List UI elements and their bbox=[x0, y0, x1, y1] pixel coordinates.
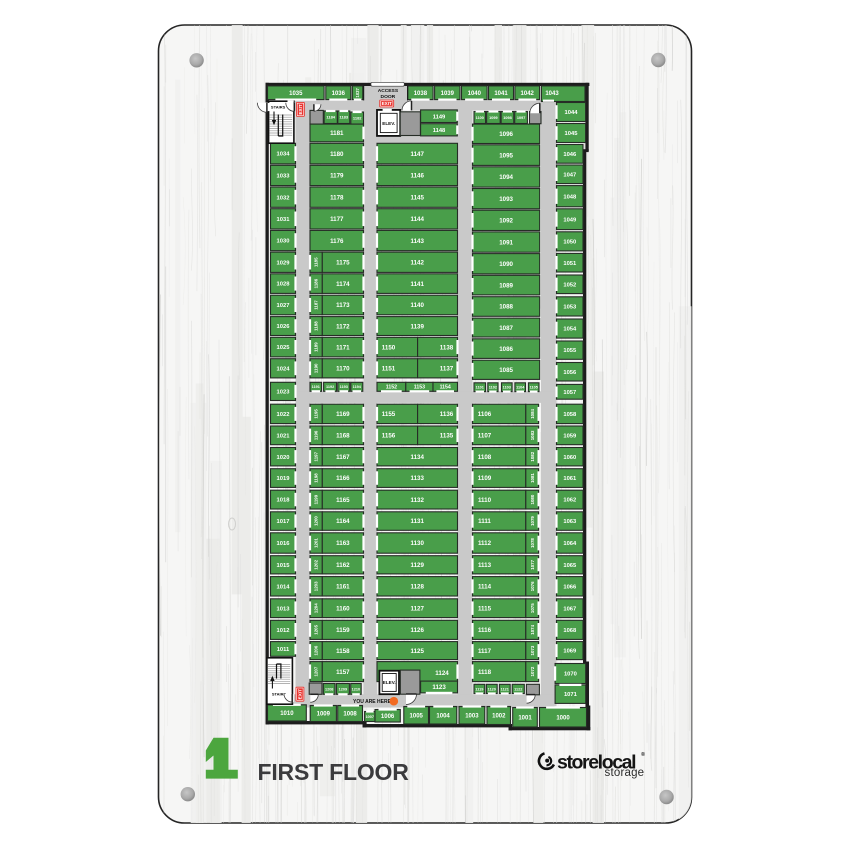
svg-text:1026: 1026 bbox=[277, 324, 291, 330]
svg-text:1008: 1008 bbox=[343, 712, 357, 718]
svg-text:1178: 1178 bbox=[330, 194, 344, 201]
svg-text:1193: 1193 bbox=[340, 385, 348, 389]
svg-text:1061: 1061 bbox=[563, 476, 577, 482]
svg-text:1023: 1023 bbox=[277, 389, 291, 395]
svg-text:1074: 1074 bbox=[530, 624, 535, 634]
svg-text:1068: 1068 bbox=[563, 628, 577, 634]
svg-text:1034: 1034 bbox=[277, 152, 291, 158]
svg-text:1042: 1042 bbox=[521, 91, 535, 97]
svg-text:1128: 1128 bbox=[410, 584, 424, 591]
svg-text:1159: 1159 bbox=[336, 627, 350, 634]
svg-text:1138: 1138 bbox=[440, 344, 454, 351]
svg-text:1077: 1077 bbox=[530, 559, 535, 569]
svg-text:1151: 1151 bbox=[382, 366, 396, 373]
svg-text:1126: 1126 bbox=[410, 627, 424, 634]
svg-text:1093: 1093 bbox=[499, 196, 513, 203]
svg-text:1043: 1043 bbox=[545, 91, 559, 97]
svg-text:1197: 1197 bbox=[314, 451, 319, 461]
svg-text:1188: 1188 bbox=[314, 321, 319, 331]
svg-text:1111: 1111 bbox=[478, 518, 491, 525]
svg-text:1174: 1174 bbox=[336, 281, 350, 288]
svg-text:EXIT: EXIT bbox=[298, 104, 303, 114]
svg-text:1033: 1033 bbox=[277, 173, 291, 179]
svg-text:1006: 1006 bbox=[381, 714, 395, 720]
svg-text:1114: 1114 bbox=[478, 584, 492, 591]
svg-text:1009: 1009 bbox=[317, 712, 331, 718]
svg-text:1125: 1125 bbox=[410, 648, 424, 655]
svg-text:1133: 1133 bbox=[410, 475, 424, 482]
svg-text:1152: 1152 bbox=[386, 385, 397, 391]
svg-text:1007: 1007 bbox=[366, 715, 374, 719]
svg-text:1121: 1121 bbox=[501, 687, 509, 691]
svg-text:1168: 1168 bbox=[336, 433, 350, 440]
svg-text:1163: 1163 bbox=[336, 540, 350, 547]
svg-text:1147: 1147 bbox=[410, 151, 424, 158]
svg-text:1021: 1021 bbox=[277, 433, 291, 439]
svg-text:1204: 1204 bbox=[314, 603, 319, 613]
svg-text:1072: 1072 bbox=[530, 666, 535, 676]
svg-text:1098: 1098 bbox=[503, 116, 511, 120]
svg-text:1120: 1120 bbox=[488, 687, 496, 691]
svg-text:1031: 1031 bbox=[277, 217, 291, 223]
svg-text:1198: 1198 bbox=[314, 473, 319, 483]
svg-text:1134: 1134 bbox=[410, 454, 424, 461]
svg-text:1164: 1164 bbox=[336, 518, 350, 525]
svg-text:1027: 1027 bbox=[277, 303, 290, 309]
svg-text:EXIT: EXIT bbox=[297, 689, 302, 699]
svg-text:1186: 1186 bbox=[314, 278, 319, 288]
svg-text:1149: 1149 bbox=[433, 114, 446, 120]
svg-text:1049: 1049 bbox=[563, 217, 577, 223]
svg-text:1040: 1040 bbox=[468, 91, 482, 97]
svg-text:1123: 1123 bbox=[432, 684, 446, 691]
svg-text:1192: 1192 bbox=[326, 385, 334, 389]
svg-text:1155: 1155 bbox=[382, 411, 396, 418]
svg-text:1018: 1018 bbox=[277, 498, 291, 504]
svg-text:1136: 1136 bbox=[440, 411, 454, 418]
svg-text:1131: 1131 bbox=[410, 518, 424, 525]
svg-text:1161: 1161 bbox=[336, 584, 350, 591]
svg-text:1139: 1139 bbox=[410, 323, 424, 330]
svg-text:1060: 1060 bbox=[563, 455, 576, 461]
svg-text:1059: 1059 bbox=[563, 433, 577, 439]
svg-text:®: ® bbox=[641, 751, 645, 758]
svg-text:1095: 1095 bbox=[499, 152, 513, 159]
svg-text:1010: 1010 bbox=[280, 711, 294, 717]
svg-text:1203: 1203 bbox=[314, 581, 319, 591]
svg-text:1196: 1196 bbox=[314, 430, 319, 440]
svg-text:1153: 1153 bbox=[414, 385, 425, 391]
svg-text:1108: 1108 bbox=[478, 454, 492, 461]
svg-text:1110: 1110 bbox=[478, 497, 492, 504]
svg-text:1210: 1210 bbox=[352, 687, 360, 691]
svg-text:1195: 1195 bbox=[314, 409, 319, 419]
svg-text:1100: 1100 bbox=[476, 116, 484, 120]
svg-text:1118: 1118 bbox=[478, 669, 492, 676]
svg-text:1146: 1146 bbox=[410, 173, 424, 180]
svg-text:1171: 1171 bbox=[336, 344, 350, 351]
svg-text:1156: 1156 bbox=[382, 433, 396, 440]
svg-text:1039: 1039 bbox=[441, 91, 455, 97]
svg-text:ELEV.: ELEV. bbox=[383, 680, 396, 685]
svg-text:1096: 1096 bbox=[499, 131, 513, 138]
svg-text:1015: 1015 bbox=[277, 563, 291, 569]
svg-text:1162: 1162 bbox=[336, 562, 350, 569]
svg-text:1067: 1067 bbox=[563, 606, 576, 612]
svg-text:1079: 1079 bbox=[530, 516, 535, 526]
svg-text:1180: 1180 bbox=[330, 151, 344, 158]
svg-text:1207: 1207 bbox=[314, 666, 319, 676]
svg-text:1000: 1000 bbox=[556, 715, 570, 721]
svg-text:1055: 1055 bbox=[563, 348, 577, 354]
svg-text:1106: 1106 bbox=[478, 411, 492, 418]
svg-text:1185: 1185 bbox=[314, 257, 319, 267]
svg-text:1053: 1053 bbox=[563, 304, 577, 310]
svg-text:1201: 1201 bbox=[314, 538, 319, 548]
svg-text:1075: 1075 bbox=[530, 603, 535, 613]
svg-text:1050: 1050 bbox=[563, 239, 576, 245]
svg-text:1091: 1091 bbox=[499, 239, 513, 246]
svg-text:1107: 1107 bbox=[478, 433, 492, 440]
svg-text:1057: 1057 bbox=[563, 390, 576, 396]
svg-text:1104: 1104 bbox=[516, 386, 525, 390]
svg-text:1141: 1141 bbox=[410, 281, 424, 288]
svg-text:YOU ARE HERE: YOU ARE HERE bbox=[353, 699, 392, 705]
svg-text:1087: 1087 bbox=[499, 325, 513, 332]
svg-text:1045: 1045 bbox=[565, 131, 579, 137]
svg-text:1073: 1073 bbox=[530, 645, 535, 655]
svg-text:1113: 1113 bbox=[478, 562, 492, 569]
svg-text:1103: 1103 bbox=[503, 386, 511, 390]
svg-text:1167: 1167 bbox=[336, 454, 350, 461]
svg-text:1194: 1194 bbox=[353, 385, 362, 389]
svg-text:1064: 1064 bbox=[563, 541, 577, 547]
svg-text:1069: 1069 bbox=[563, 649, 577, 655]
svg-text:1090: 1090 bbox=[499, 261, 513, 268]
svg-text:1097: 1097 bbox=[517, 116, 525, 120]
svg-text:1030: 1030 bbox=[277, 239, 290, 245]
svg-text:1024: 1024 bbox=[277, 366, 291, 372]
svg-text:1137: 1137 bbox=[440, 366, 454, 373]
svg-text:1092: 1092 bbox=[499, 218, 513, 225]
svg-text:1082: 1082 bbox=[530, 451, 535, 461]
svg-text:1190: 1190 bbox=[314, 363, 319, 373]
svg-text:1001: 1001 bbox=[518, 715, 532, 721]
svg-text:1175: 1175 bbox=[336, 259, 350, 266]
svg-text:1184: 1184 bbox=[326, 115, 335, 120]
svg-text:1189: 1189 bbox=[314, 342, 319, 352]
svg-text:1028: 1028 bbox=[277, 282, 291, 288]
svg-text:1022: 1022 bbox=[277, 412, 290, 418]
svg-text:1124: 1124 bbox=[435, 670, 449, 677]
svg-text:1058: 1058 bbox=[563, 412, 577, 418]
svg-text:1012: 1012 bbox=[277, 628, 290, 634]
svg-text:ELEV.: ELEV. bbox=[382, 121, 395, 126]
svg-text:1187: 1187 bbox=[314, 300, 319, 310]
svg-text:1209: 1209 bbox=[339, 687, 347, 691]
svg-text:1038: 1038 bbox=[414, 91, 428, 97]
svg-text:1020: 1020 bbox=[277, 455, 290, 461]
svg-text:1117: 1117 bbox=[478, 648, 492, 655]
svg-text:1056: 1056 bbox=[563, 370, 577, 376]
svg-text:1076: 1076 bbox=[530, 581, 535, 591]
svg-text:1145: 1145 bbox=[410, 194, 424, 201]
svg-text:1176: 1176 bbox=[330, 238, 344, 245]
svg-text:1063: 1063 bbox=[563, 519, 577, 525]
svg-text:1036: 1036 bbox=[332, 91, 346, 97]
svg-text:1078: 1078 bbox=[530, 538, 535, 548]
svg-text:1183: 1183 bbox=[339, 115, 348, 120]
svg-text:1014: 1014 bbox=[277, 584, 291, 590]
svg-text:1051: 1051 bbox=[563, 261, 577, 267]
svg-text:1094: 1094 bbox=[499, 174, 513, 181]
svg-text:1011: 1011 bbox=[277, 647, 290, 653]
svg-text:1200: 1200 bbox=[314, 516, 319, 526]
svg-text:1119: 1119 bbox=[475, 687, 483, 691]
svg-text:DOOR: DOOR bbox=[381, 94, 396, 100]
svg-text:1157: 1157 bbox=[336, 669, 350, 676]
svg-text:1062: 1062 bbox=[563, 498, 576, 504]
svg-text:1035: 1035 bbox=[289, 91, 303, 97]
svg-text:1048: 1048 bbox=[563, 194, 577, 200]
svg-text:1003: 1003 bbox=[465, 713, 479, 719]
svg-text:1005: 1005 bbox=[410, 713, 424, 719]
svg-text:1129: 1129 bbox=[410, 562, 424, 569]
svg-text:storage: storage bbox=[605, 767, 645, 779]
svg-text:1083: 1083 bbox=[530, 430, 535, 440]
svg-text:1179: 1179 bbox=[330, 173, 344, 180]
svg-text:1150: 1150 bbox=[382, 344, 396, 351]
svg-text:1116: 1116 bbox=[478, 627, 492, 634]
svg-text:1206: 1206 bbox=[314, 645, 319, 655]
svg-text:1132: 1132 bbox=[410, 497, 424, 504]
svg-text:1208: 1208 bbox=[325, 687, 333, 691]
svg-text:1019: 1019 bbox=[277, 476, 291, 482]
svg-text:1071: 1071 bbox=[564, 692, 578, 698]
svg-text:1102: 1102 bbox=[489, 386, 497, 390]
svg-text:1054: 1054 bbox=[563, 327, 577, 333]
svg-text:FIRST FLOOR: FIRST FLOOR bbox=[258, 759, 410, 785]
svg-text:1025: 1025 bbox=[277, 345, 291, 351]
svg-text:1181: 1181 bbox=[330, 130, 344, 137]
svg-text:EXIT: EXIT bbox=[382, 101, 392, 106]
svg-text:1166: 1166 bbox=[336, 475, 350, 482]
svg-text:1140: 1140 bbox=[410, 302, 424, 309]
svg-text:1081: 1081 bbox=[530, 473, 535, 483]
svg-text:1065: 1065 bbox=[563, 563, 577, 569]
svg-text:1170: 1170 bbox=[336, 366, 350, 373]
svg-text:ACCESS: ACCESS bbox=[378, 88, 399, 94]
svg-text:1016: 1016 bbox=[277, 541, 291, 547]
svg-text:1122: 1122 bbox=[514, 687, 522, 691]
svg-text:1017: 1017 bbox=[277, 519, 290, 525]
svg-text:1085: 1085 bbox=[499, 367, 513, 374]
svg-text:1135: 1135 bbox=[440, 433, 454, 440]
svg-text:1182: 1182 bbox=[353, 115, 362, 120]
svg-text:1112: 1112 bbox=[478, 540, 492, 547]
svg-text:1052: 1052 bbox=[563, 282, 576, 288]
svg-text:1109: 1109 bbox=[478, 475, 492, 482]
svg-text:1046: 1046 bbox=[563, 152, 577, 158]
svg-text:1037: 1037 bbox=[355, 87, 360, 97]
svg-text:1070: 1070 bbox=[564, 672, 577, 678]
svg-text:1177: 1177 bbox=[330, 216, 344, 223]
svg-text:1142: 1142 bbox=[410, 259, 424, 266]
svg-text:1130: 1130 bbox=[410, 540, 424, 547]
svg-text:1165: 1165 bbox=[336, 497, 350, 504]
svg-text:1047: 1047 bbox=[563, 172, 576, 178]
svg-text:1158: 1158 bbox=[336, 648, 350, 655]
svg-text:1041: 1041 bbox=[494, 91, 508, 97]
svg-text:1154: 1154 bbox=[440, 385, 451, 391]
svg-text:1105: 1105 bbox=[530, 386, 538, 390]
svg-text:1084: 1084 bbox=[530, 408, 535, 418]
svg-text:1099: 1099 bbox=[489, 116, 497, 120]
svg-text:1205: 1205 bbox=[314, 624, 319, 634]
svg-text:1115: 1115 bbox=[478, 605, 492, 612]
svg-text:1086: 1086 bbox=[499, 346, 513, 353]
svg-text:1002: 1002 bbox=[492, 714, 506, 720]
svg-text:1080: 1080 bbox=[530, 494, 535, 504]
svg-text:1148: 1148 bbox=[433, 128, 446, 134]
svg-text:1172: 1172 bbox=[336, 323, 350, 330]
svg-text:1088: 1088 bbox=[499, 304, 513, 311]
svg-text:1173: 1173 bbox=[336, 302, 350, 309]
svg-text:1101: 1101 bbox=[476, 386, 484, 390]
svg-text:1004: 1004 bbox=[436, 713, 450, 719]
svg-text:STAIRS: STAIRS bbox=[271, 104, 286, 109]
svg-text:1013: 1013 bbox=[277, 606, 291, 612]
svg-text:1199: 1199 bbox=[314, 494, 319, 504]
svg-text:1143: 1143 bbox=[410, 238, 424, 245]
svg-text:1089: 1089 bbox=[499, 282, 513, 289]
svg-text:1191: 1191 bbox=[312, 385, 320, 389]
svg-text:1032: 1032 bbox=[277, 195, 290, 201]
svg-text:1169: 1169 bbox=[336, 411, 350, 418]
svg-text:1044: 1044 bbox=[565, 110, 579, 116]
svg-text:1127: 1127 bbox=[410, 605, 424, 612]
svg-text:1066: 1066 bbox=[563, 584, 577, 590]
svg-text:1144: 1144 bbox=[410, 216, 424, 223]
svg-text:1202: 1202 bbox=[314, 559, 319, 569]
svg-text:1160: 1160 bbox=[336, 605, 350, 612]
svg-text:1029: 1029 bbox=[277, 260, 291, 266]
